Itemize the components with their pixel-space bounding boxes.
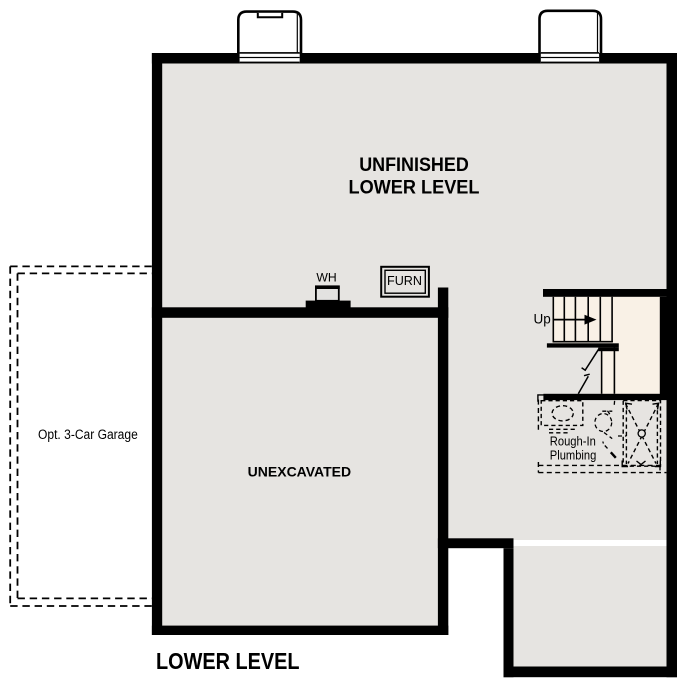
svg-text:Up: Up bbox=[534, 311, 551, 326]
svg-text:LOWER LEVEL: LOWER LEVEL bbox=[156, 648, 300, 674]
svg-text:UNEXCAVATED: UNEXCAVATED bbox=[248, 464, 351, 480]
svg-text:LOWER LEVEL: LOWER LEVEL bbox=[349, 178, 480, 199]
svg-text:WH: WH bbox=[316, 271, 336, 285]
svg-text:UNFINISHED: UNFINISHED bbox=[359, 155, 469, 176]
svg-text:Rough-In: Rough-In bbox=[550, 433, 596, 448]
svg-text:Opt. 3-Car Garage: Opt. 3-Car Garage bbox=[38, 427, 138, 442]
svg-text:FURN: FURN bbox=[387, 274, 422, 288]
svg-text:Plumbing: Plumbing bbox=[550, 448, 597, 463]
